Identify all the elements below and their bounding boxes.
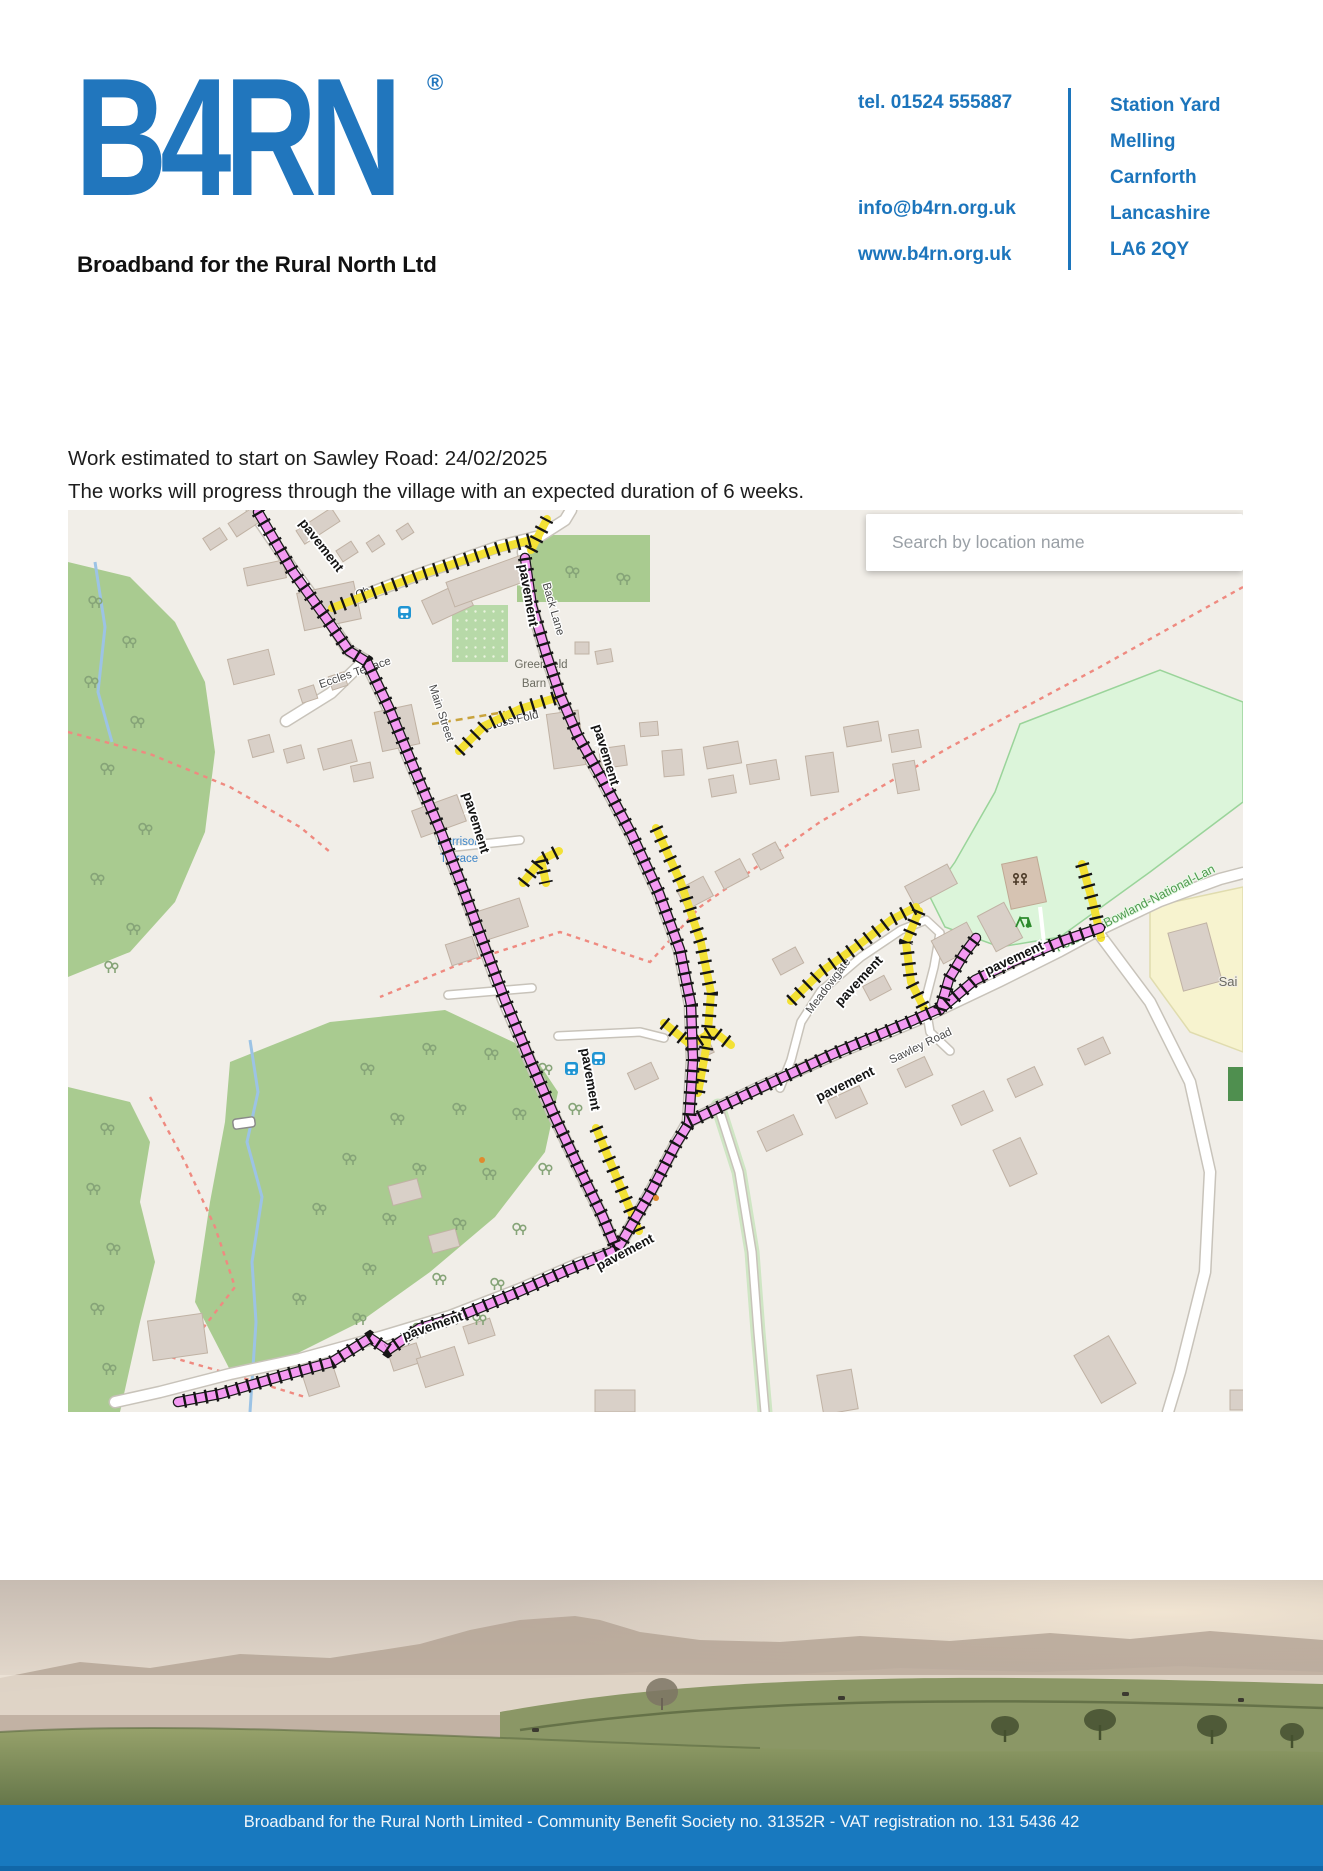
landscape-photo <box>0 1580 1323 1805</box>
building <box>805 752 838 796</box>
poi-dot <box>479 1157 485 1163</box>
address-line: Lancashire <box>1110 196 1221 232</box>
address-line: Carnforth <box>1110 160 1221 196</box>
address-block: Station Yard Melling Carnforth Lancashir… <box>1110 88 1221 268</box>
building <box>709 775 737 797</box>
building <box>639 721 658 737</box>
work-duration-line: The works will progress through the vill… <box>68 480 804 504</box>
building <box>817 1369 858 1412</box>
logo-wordmark: B4RN <box>75 62 395 212</box>
poi-dot <box>653 1195 659 1201</box>
building <box>893 760 920 793</box>
contact-divider <box>1068 88 1071 270</box>
address-line: LA6 2QY <box>1110 232 1221 268</box>
map-search[interactable] <box>866 514 1243 571</box>
bridge-icon <box>232 1117 255 1130</box>
svg-text:Sai: Sai <box>1219 974 1238 989</box>
bus-stop-icon <box>592 1052 605 1065</box>
map-canvas[interactable]: Ch Back Lane Cross Fold Eccles Terrace M… <box>68 510 1243 1412</box>
work-start-line: Work estimated to start on Sawley Road: … <box>68 447 547 471</box>
map-svg: Ch Back Lane Cross Fold Eccles Terrace M… <box>68 510 1243 1412</box>
building <box>575 642 589 654</box>
svg-text:Barn: Barn <box>522 678 546 690</box>
contact-telephone: tel. 01524 555887 <box>858 92 1012 114</box>
building <box>1230 1390 1243 1410</box>
search-input[interactable] <box>866 514 1243 571</box>
building <box>147 1313 207 1360</box>
building <box>351 762 374 782</box>
logo-tagline: Broadband for the Rural North Ltd <box>77 252 437 278</box>
b4rn-logo: B4RN ® Broadband for the Rural North Ltd <box>75 62 496 212</box>
contact-email: info@b4rn.org.uk <box>858 198 1016 220</box>
address-line: Melling <box>1110 124 1221 160</box>
bus-stop-icon <box>398 606 411 619</box>
orchard-area <box>452 605 508 662</box>
bus-stop-icon <box>565 1062 578 1075</box>
green-plot <box>1228 1067 1243 1101</box>
registered-trademark-icon: ® <box>427 70 443 96</box>
svg-text:Greenfield: Greenfield <box>514 659 567 671</box>
building <box>662 749 684 777</box>
page: B4RN ® Broadband for the Rural North Ltd… <box>0 0 1323 1871</box>
address-line: Station Yard <box>1110 88 1221 124</box>
building <box>595 649 613 665</box>
contact-website: www.b4rn.org.uk <box>858 244 1011 266</box>
footer-company-text: Broadband for the Rural North Limited - … <box>0 1813 1323 1832</box>
footer-bar: Broadband for the Rural North Limited - … <box>0 1805 1323 1871</box>
building <box>595 1390 635 1412</box>
